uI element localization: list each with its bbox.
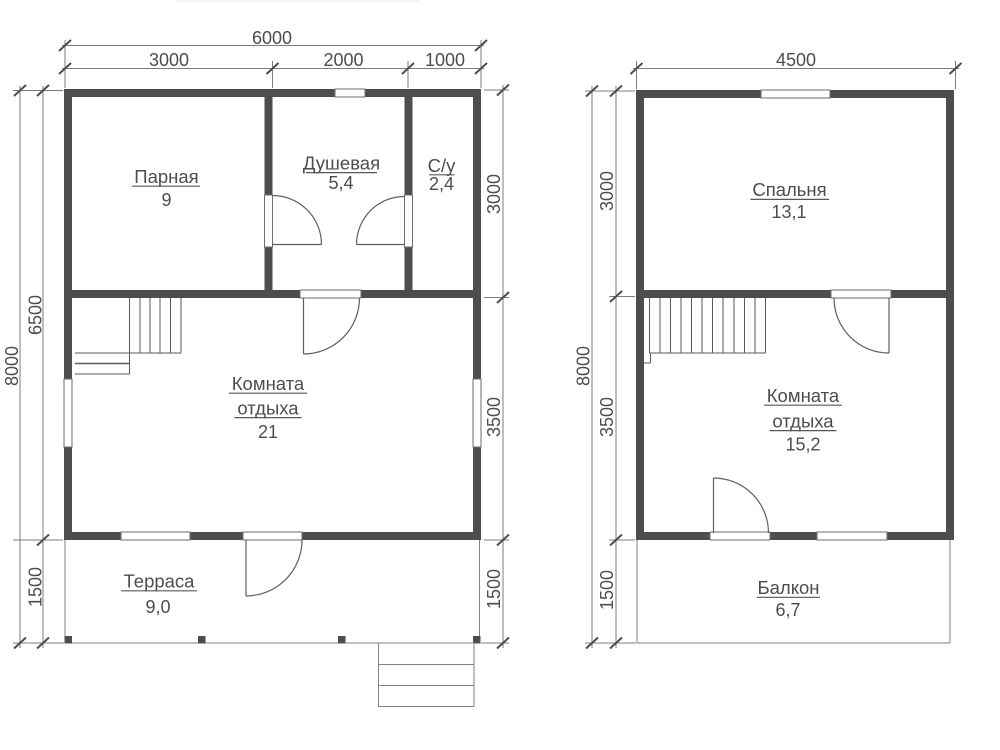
svg-text:8000: 8000	[574, 346, 594, 386]
svg-text:Комната: Комната	[232, 373, 305, 394]
svg-text:1000: 1000	[425, 50, 465, 70]
svg-text:1500: 1500	[26, 567, 46, 607]
svg-text:1500: 1500	[484, 569, 504, 609]
svg-text:6500: 6500	[26, 295, 46, 335]
svg-text:Терраса: Терраса	[124, 571, 196, 592]
svg-text:9: 9	[161, 190, 171, 210]
svg-text:2000: 2000	[323, 50, 363, 70]
svg-text:4500: 4500	[776, 50, 816, 70]
svg-text:8000: 8000	[2, 346, 22, 386]
svg-text:13,1: 13,1	[771, 202, 806, 222]
svg-text:Спальня: Спальня	[752, 179, 826, 200]
svg-text:6000: 6000	[252, 28, 292, 48]
svg-text:15,2: 15,2	[785, 435, 820, 455]
svg-text:3000: 3000	[149, 50, 189, 70]
svg-text:9,0: 9,0	[145, 597, 170, 617]
svg-text:Балкон: Балкон	[757, 577, 819, 598]
svg-text:3500: 3500	[484, 397, 504, 437]
svg-text:6,7: 6,7	[775, 600, 800, 620]
svg-text:Комната: Комната	[767, 385, 840, 406]
svg-text:3000: 3000	[484, 174, 504, 214]
svg-text:2,4: 2,4	[429, 174, 454, 194]
svg-text:отдыха: отдыха	[772, 411, 834, 432]
svg-text:Душевая: Душевая	[303, 153, 380, 174]
svg-text:отдыха: отдыха	[237, 398, 299, 419]
svg-text:3500: 3500	[597, 397, 617, 437]
svg-text:С/у: С/у	[428, 155, 457, 176]
svg-text:5,4: 5,4	[328, 173, 353, 193]
svg-text:21: 21	[258, 422, 278, 442]
svg-text:1500: 1500	[597, 570, 617, 610]
svg-text:Парная: Парная	[134, 166, 198, 187]
svg-text:3000: 3000	[597, 171, 617, 211]
